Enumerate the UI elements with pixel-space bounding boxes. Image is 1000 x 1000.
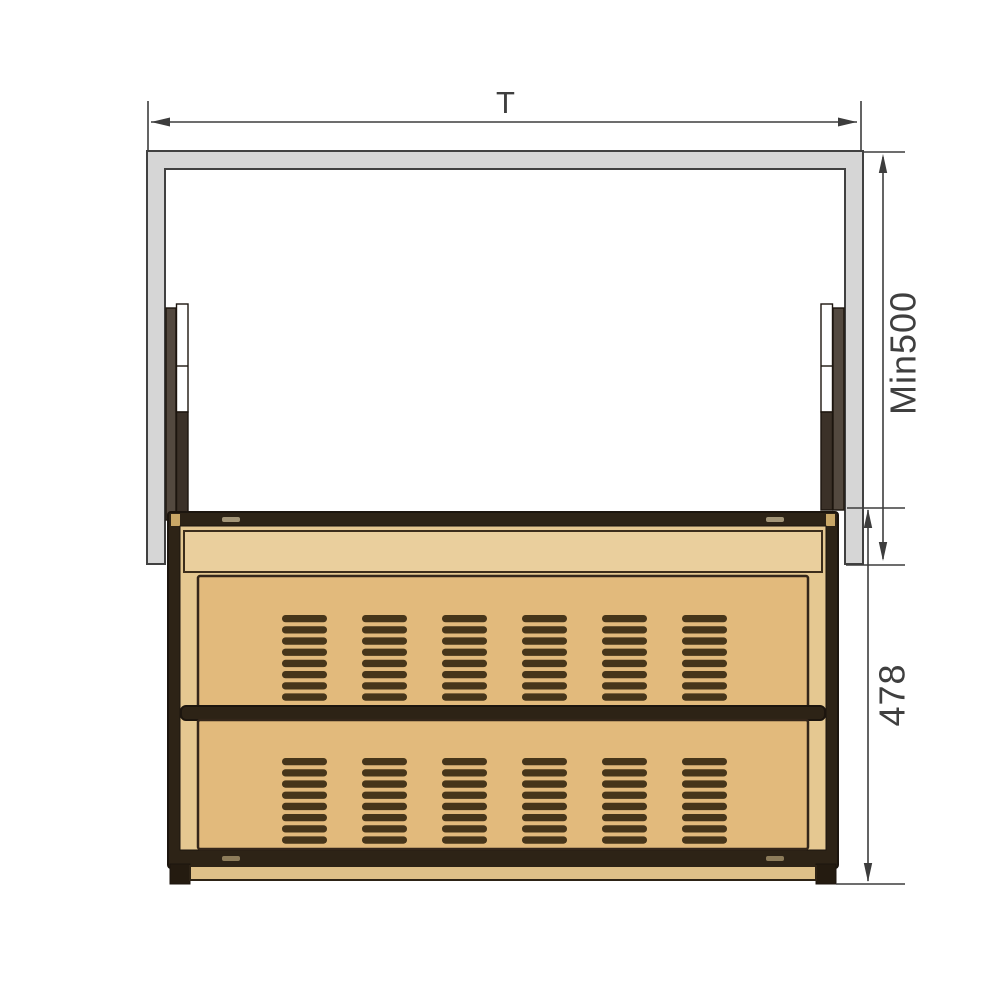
vent-slat [442,769,487,776]
vent-slat [362,682,407,689]
left-rail-upper-slide [177,304,189,412]
vent-slat [602,615,647,622]
vent-slat [602,792,647,799]
vent-slat [362,780,407,787]
vent-slat [442,825,487,832]
drawer-foot-right [816,864,836,884]
vent-slat [522,836,567,843]
vent-slat [602,825,647,832]
vent-slat [362,637,407,644]
vent-slat [602,649,647,656]
vent-slat [282,758,327,765]
drawer-unit [168,512,838,884]
vent-slat [682,825,727,832]
vent-slat [602,836,647,843]
vent-slat [362,671,407,678]
vent-slat [602,769,647,776]
vent-slat [442,626,487,633]
vent-slat [522,803,567,810]
t-arrowhead-right [838,118,857,127]
vent-slat [282,792,327,799]
vent-slat [682,615,727,622]
drawer-plinth [190,866,816,880]
vent-slat [282,769,327,776]
vent-slat [442,693,487,700]
right-slide-rail [821,304,844,510]
vent-slat [522,780,567,787]
vent-slat [282,836,327,843]
left-rail-bracket [166,308,176,520]
top-bar-mark-left [222,517,240,522]
vent-slat [282,637,327,644]
right-rail-lower-slide [821,412,833,510]
vent-slat [442,637,487,644]
vent-slat [522,682,567,689]
vent-slat [602,693,647,700]
vent-slat [442,814,487,821]
vent-slat [602,803,647,810]
right-rail-upper-slide [821,304,833,412]
vent-slat [362,792,407,799]
vent-slat [442,682,487,689]
vent-slat [362,803,407,810]
bottom-bar-mark-right [766,856,784,861]
vent-slat [362,769,407,776]
vent-slat [522,671,567,678]
vent-slat [442,803,487,810]
cabinet-carcass [147,151,863,564]
vent-slat [442,792,487,799]
technical-diagram-page: T Min500 478 [0,0,1000,1000]
vent-slat [602,671,647,678]
vent-slat [362,836,407,843]
vent-slat [282,693,327,700]
vent-slat [442,780,487,787]
vent-slat [362,814,407,821]
h478-arrowhead-top [864,509,872,528]
vent-slat [602,814,647,821]
vent-slat [282,671,327,678]
vent-slat [682,758,727,765]
vent-slat [522,626,567,633]
vent-slat [442,836,487,843]
frame-corner-left [171,514,180,526]
min500-arrowhead-top [879,154,887,173]
vent-slat [362,649,407,656]
vent-slat [282,814,327,821]
vent-slat [682,671,727,678]
vent-slat [682,814,727,821]
vent-slat [522,769,567,776]
vent-slat [362,660,407,667]
vent-slat [362,615,407,622]
vent-slat [602,626,647,633]
vent-slat [442,649,487,656]
vent-slat [522,792,567,799]
vent-slat [522,660,567,667]
vent-slat [522,693,567,700]
drawer-top-band [184,531,822,572]
vent-slat [442,758,487,765]
vent-slat [602,682,647,689]
left-slide-rail [166,304,188,520]
vent-slat [362,758,407,765]
min500-dimension-label: Min500 [883,291,924,415]
vent-slat [682,693,727,700]
vent-slat [442,671,487,678]
vent-slat [682,626,727,633]
vent-slat [682,660,727,667]
vent-slat [442,660,487,667]
vent-slat [602,637,647,644]
top-bar-mark-right [766,517,784,522]
vent-slat [442,615,487,622]
vent-slat [282,803,327,810]
vent-slat [522,825,567,832]
vent-slat [522,615,567,622]
vent-slat [522,758,567,765]
frame-corner-right [826,514,835,526]
vent-slat [682,792,727,799]
vent-slat [282,780,327,787]
vent-slat [282,626,327,633]
h478-arrowhead-bottom [864,863,872,882]
right-rail-bracket [833,308,844,510]
vent-slat [602,758,647,765]
vent-slat [682,836,727,843]
vent-slat [282,660,327,667]
vent-slat [362,693,407,700]
h478-dimension-label: 478 [872,663,913,726]
min500-arrowhead-bottom [879,542,887,561]
vent-slat [362,825,407,832]
t-dimension-label: T [496,85,516,120]
left-rail-lower-slide [177,412,189,520]
vent-slat [682,682,727,689]
vent-slat [522,637,567,644]
drawer-foot-left [170,864,190,884]
vent-slat [282,649,327,656]
bottom-bar-mark-left [222,856,240,861]
vent-slat [522,649,567,656]
vent-slat [282,825,327,832]
drawer-installation-diagram: T Min500 478 [0,0,1000,1000]
vent-slat [522,814,567,821]
dimension-width-t: T [148,85,861,151]
vent-slat [282,615,327,622]
vent-slat [682,803,727,810]
vent-slat [682,769,727,776]
vent-slat [682,649,727,656]
t-arrowhead-left [151,118,170,127]
vent-slat [602,660,647,667]
drawer-divider [181,706,825,720]
cabinet-panels [147,151,863,564]
vent-slat [602,780,647,787]
vent-slat [282,682,327,689]
vent-slat [682,637,727,644]
vent-slat [682,780,727,787]
vent-slat [362,626,407,633]
